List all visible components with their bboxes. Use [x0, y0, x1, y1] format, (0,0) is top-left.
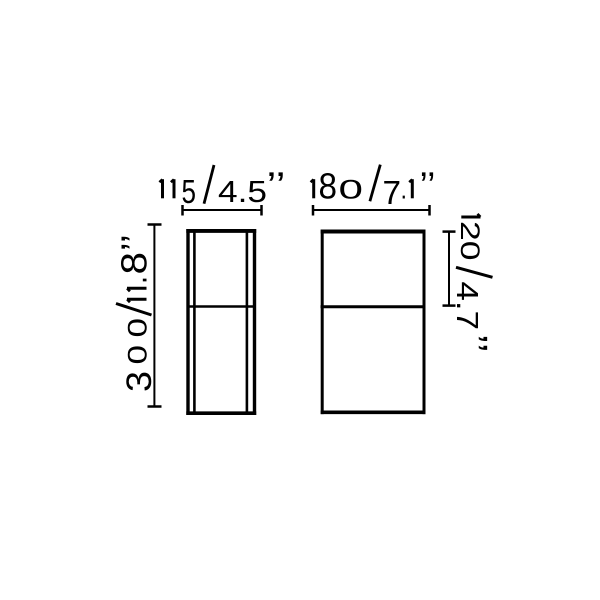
svg-text:’’: ’’: [267, 166, 286, 208]
svg-text:3: 3: [120, 371, 159, 392]
svg-text:.: .: [401, 175, 408, 205]
svg-text:5: 5: [182, 173, 197, 210]
svg-text:20: 20: [455, 221, 485, 261]
svg-text:0: 0: [123, 318, 153, 338]
svg-text:4.7: 4.7: [450, 282, 485, 331]
svg-text:0: 0: [339, 175, 364, 205]
svg-text:7: 7: [383, 174, 402, 211]
svg-text:0: 0: [123, 345, 153, 365]
svg-text:’’: ’’: [420, 166, 436, 208]
svg-text:’’: ’’: [114, 234, 155, 251]
svg-text:8: 8: [319, 166, 338, 207]
svg-text:.: .: [117, 276, 155, 284]
svg-text:’’: ’’: [452, 334, 494, 353]
svg-text:4.5: 4.5: [218, 174, 267, 209]
svg-text:8: 8: [114, 252, 155, 275]
